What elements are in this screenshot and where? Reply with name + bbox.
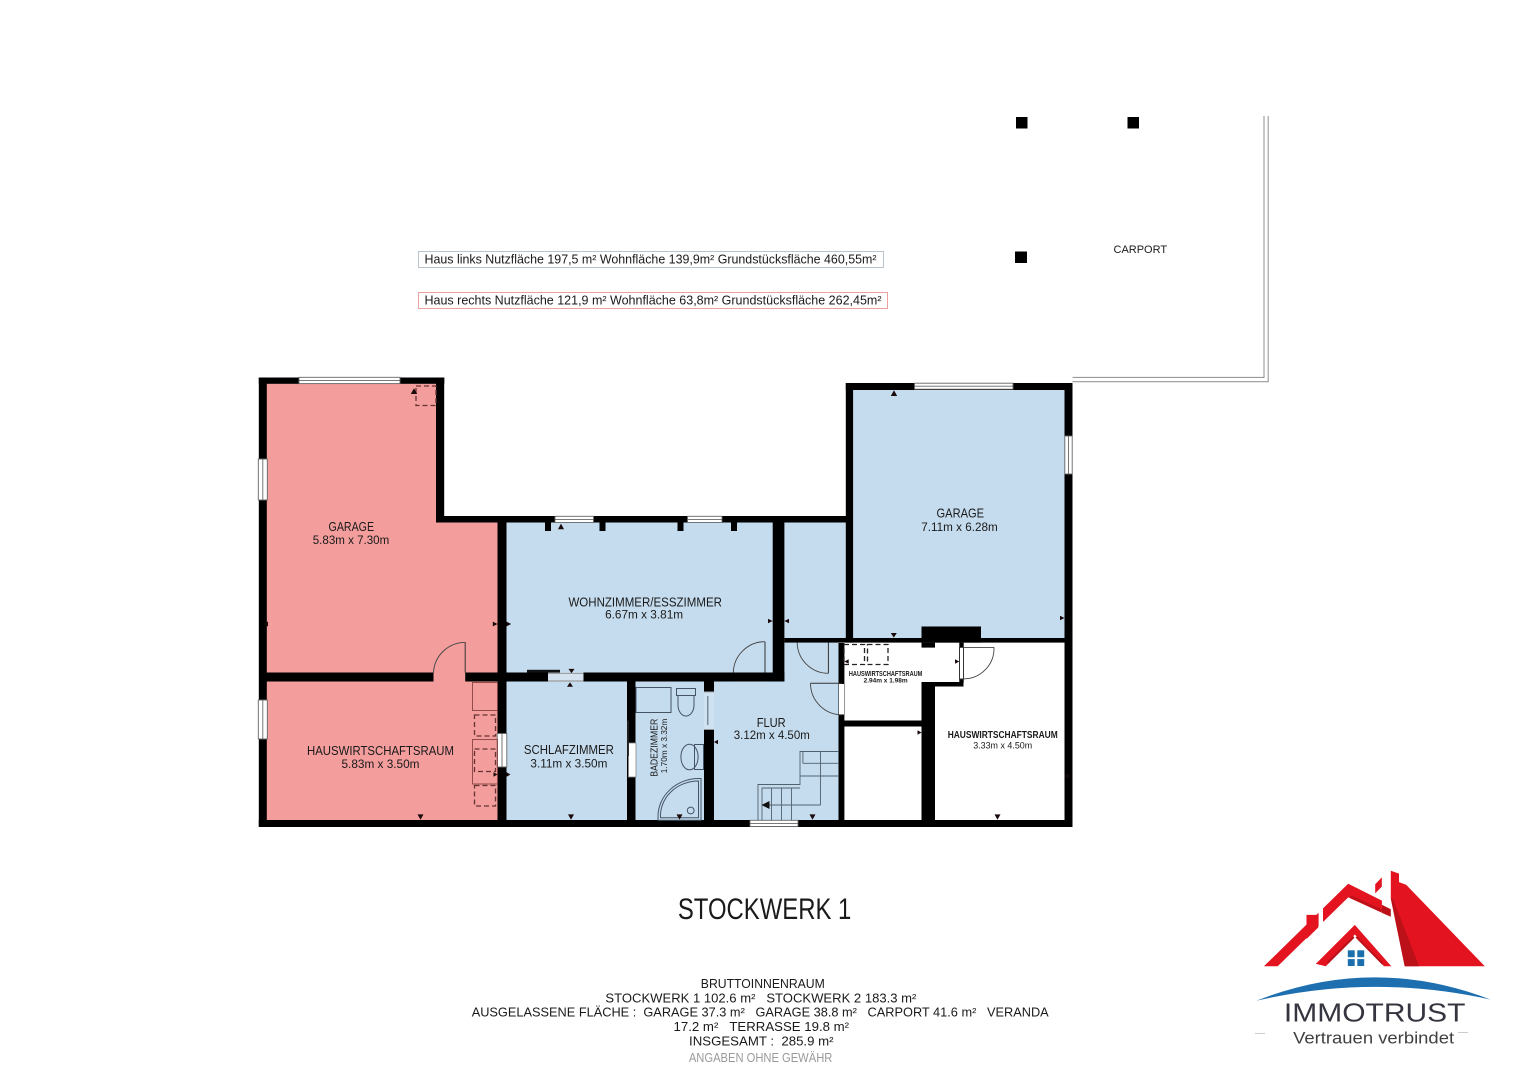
svg-text:INSGESAMT : 285.9 m²: INSGESAMT : 285.9 m² — [689, 1034, 834, 1049]
svg-text:Vertrauen verbindet: Vertrauen verbindet — [1293, 1029, 1454, 1048]
svg-text:2.94m x 1.98m: 2.94m x 1.98m — [864, 677, 908, 684]
svg-text:STOCKWERK 1: STOCKWERK 1 — [678, 893, 852, 926]
svg-text:WOHNZIMMER/ESSZIMMER: WOHNZIMMER/ESSZIMMER — [568, 595, 722, 610]
svg-text:3.33m x 4.50m: 3.33m x 4.50m — [973, 740, 1032, 751]
svg-text:ANGABEN OHNE GEWÄHR: ANGABEN OHNE GEWÄHR — [689, 1050, 833, 1065]
svg-text:6.67m x 3.81m: 6.67m x 3.81m — [605, 609, 683, 621]
svg-text:5.83m x 7.30m: 5.83m x 7.30m — [313, 535, 390, 547]
svg-text:5.83m x 3.50m: 5.83m x 3.50m — [342, 759, 420, 771]
svg-text:Haus links Nutzfläche 197,5 m²: Haus links Nutzfläche 197,5 m² Wohnfläch… — [425, 252, 878, 267]
svg-text:GARAGE: GARAGE — [329, 519, 375, 534]
svg-text:17.2 m² TERRASSE 19.8 m²: 17.2 m² TERRASSE 19.8 m² — [674, 1019, 850, 1034]
svg-text:3.11m x 3.50m: 3.11m x 3.50m — [530, 758, 607, 770]
svg-text:Haus rechts Nutzfläche 121,9 m: Haus rechts Nutzfläche 121,9 m² Wohnfläc… — [425, 293, 883, 308]
svg-text:7.11m x 6.28m: 7.11m x 6.28m — [921, 522, 998, 534]
svg-text:BRUTTOINNENRAUM: BRUTTOINNENRAUM — [701, 976, 825, 991]
svg-text:IMMOTRUST: IMMOTRUST — [1284, 997, 1466, 1027]
svg-text:HAUSWIRTSCHAFTSRAUM: HAUSWIRTSCHAFTSRAUM — [307, 744, 454, 758]
svg-text:CARPORT: CARPORT — [1114, 244, 1168, 256]
svg-text:GARAGE: GARAGE — [937, 505, 985, 520]
svg-text:AUSGELASSENE FLÄCHE : GARAGE: AUSGELASSENE FLÄCHE : GARAGE 37.3 m² GAR… — [472, 1005, 1049, 1020]
svg-text:FLUR: FLUR — [757, 715, 786, 730]
svg-text:1.70m x 3.32m: 1.70m x 3.32m — [660, 719, 669, 774]
svg-text:SCHLAFZIMMER: SCHLAFZIMMER — [524, 743, 614, 757]
svg-text:3.12m x 4.50m: 3.12m x 4.50m — [734, 730, 810, 742]
svg-text:BADEZIMMER: BADEZIMMER — [649, 719, 660, 777]
svg-text:STOCKWERK 1 102.6 m² STOCKWE: STOCKWERK 1 102.6 m² STOCKWERK 2 183.3 m… — [605, 990, 917, 1005]
